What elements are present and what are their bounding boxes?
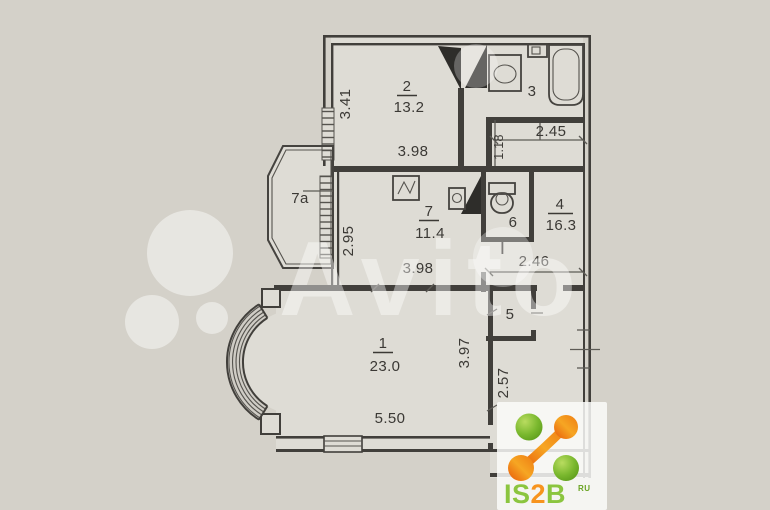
logo-green-dot-icon (516, 414, 543, 441)
room-3-number: 3 (528, 83, 537, 100)
watermark-text: Avito (279, 220, 585, 338)
room-7-number: 7 (425, 203, 434, 220)
watermark-circle (147, 210, 233, 296)
logo-orange-dot-icon (508, 455, 534, 481)
dim-room1-height: 3.97 (456, 338, 473, 369)
room-1-area: 23.0 (370, 358, 401, 375)
dim-room2-width: 3.98 (398, 143, 429, 160)
logo-wordmark: IS2B (504, 479, 566, 509)
dim-room2-height: 3.41 (337, 89, 354, 120)
watermark-circle (196, 302, 228, 334)
dim-hall-top-height: 1.18 (492, 134, 506, 160)
room-7a-number: 7a (291, 190, 309, 207)
floor-plan-svg: 2 13.2 3.41 3.98 3 2.45 1.18 7a 7 11.4 2… (0, 0, 770, 510)
room-4-number: 4 (556, 196, 565, 213)
is2b-logo: IS2B RU (497, 402, 607, 510)
watermark-circle (454, 44, 498, 88)
dim-hall-bottom-height: 2.57 (495, 368, 512, 399)
room-2-area: 13.2 (394, 99, 425, 116)
floor-plan-photo: 2 13.2 3.41 3.98 3 2.45 1.18 7a 7 11.4 2… (0, 0, 770, 510)
room-2-number: 2 (403, 78, 412, 95)
logo-suffix: RU (578, 484, 591, 493)
logo-green-dot-icon (553, 455, 579, 481)
window-room1 (324, 436, 362, 452)
watermark-circle (125, 295, 179, 349)
dim-room1-width: 5.50 (375, 410, 406, 427)
logo-orange-dot-icon (554, 415, 578, 439)
dim-hall-top-width: 2.45 (536, 123, 567, 140)
